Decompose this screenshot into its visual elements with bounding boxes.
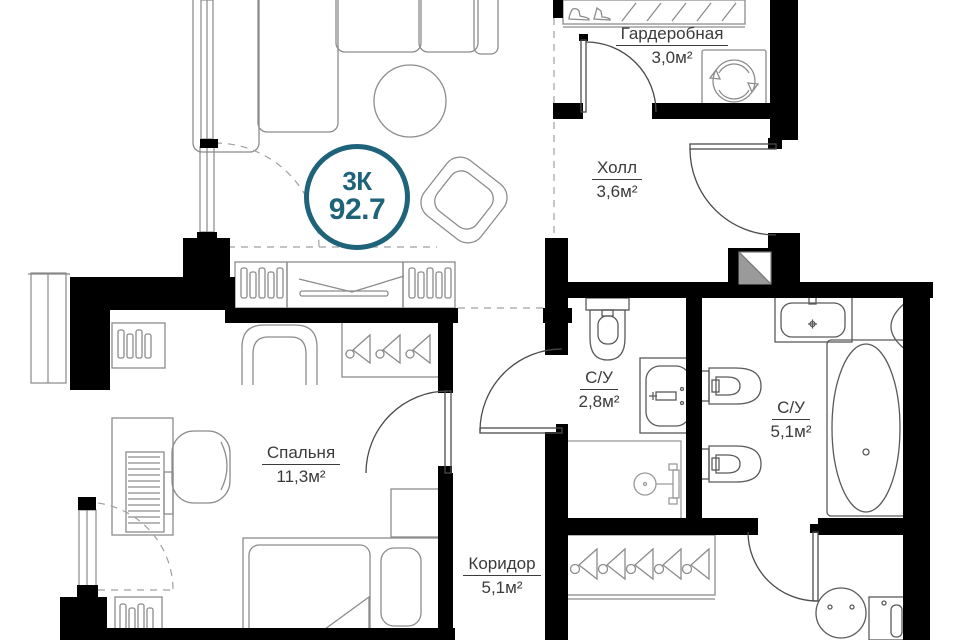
armchair-icon	[414, 150, 514, 249]
room-area: 2,8м²	[524, 390, 674, 412]
window	[79, 510, 96, 586]
window-swing-arc	[85, 502, 173, 590]
room-name: Холл	[592, 158, 642, 180]
office-chair-icon	[172, 431, 230, 503]
room-label-corridor: Коридор 5,1м²	[427, 554, 577, 598]
radiator-icon	[869, 597, 906, 640]
desk-icon	[112, 418, 173, 535]
room-name: Гардеробная	[616, 24, 729, 46]
coffee-table-icon	[374, 65, 446, 137]
door-bedroom	[366, 391, 451, 473]
toilet-icon	[586, 298, 629, 360]
vent-shaft-icon	[739, 252, 771, 284]
corridor-closet-icon	[567, 535, 715, 599]
door-bathroom-large	[748, 532, 818, 601]
storage-hatch-left	[235, 262, 287, 308]
bed-icon	[243, 489, 440, 640]
shower-icon	[567, 441, 681, 523]
room-name: Спальня	[262, 443, 340, 465]
walls	[60, 0, 933, 640]
room-name: С/У	[772, 398, 810, 420]
room-name: С/У	[580, 368, 618, 390]
room-area: 11,3м²	[226, 465, 376, 487]
stool-icon	[816, 588, 866, 638]
shoe-shelf-icon	[563, 0, 745, 27]
floor-plan: Гардеробная 3,0м² Холл 3,6м² С/У 2,8м² С…	[0, 0, 960, 640]
wardrobe-hatch-icon	[112, 323, 165, 368]
room-name: Коридор	[463, 554, 540, 576]
tv-console-icon	[287, 262, 404, 308]
room-label-bathroom-small: С/У 2,8м²	[524, 368, 674, 412]
bedroom-armchair-icon	[242, 325, 317, 385]
sofa-icon	[193, 0, 498, 152]
bidet-icon	[700, 446, 761, 482]
room-area: 5,1м²	[427, 576, 577, 598]
room-label-wardrobe: Гардеробная 3,0м²	[597, 24, 747, 68]
heel-shoe-icon	[594, 8, 610, 20]
badge-total-area: 92.7	[329, 194, 385, 226]
room-area: 3,0м²	[597, 46, 747, 68]
apartment-badge: 3К 92.7	[304, 144, 410, 250]
closet-hangers-icon	[342, 320, 440, 377]
floor-plan-drawing	[0, 0, 960, 640]
boot-icon	[569, 9, 589, 20]
bathroom-large-fixtures	[700, 293, 906, 640]
window	[200, 147, 214, 232]
window	[201, 0, 213, 139]
room-area: 3,6м²	[542, 180, 692, 202]
storage-hatch-right	[403, 262, 455, 308]
sink-icon	[775, 293, 852, 342]
room-label-hall: Холл 3,6м²	[542, 158, 692, 202]
room-label-bathroom-large: С/У 5,1м²	[716, 398, 866, 442]
badge-rooms-label: 3К	[342, 168, 371, 194]
room-label-bedroom: Спальня 11,3м²	[226, 443, 376, 487]
room-area: 5,1м²	[716, 420, 866, 442]
door-hall	[690, 144, 776, 235]
window	[31, 273, 66, 383]
